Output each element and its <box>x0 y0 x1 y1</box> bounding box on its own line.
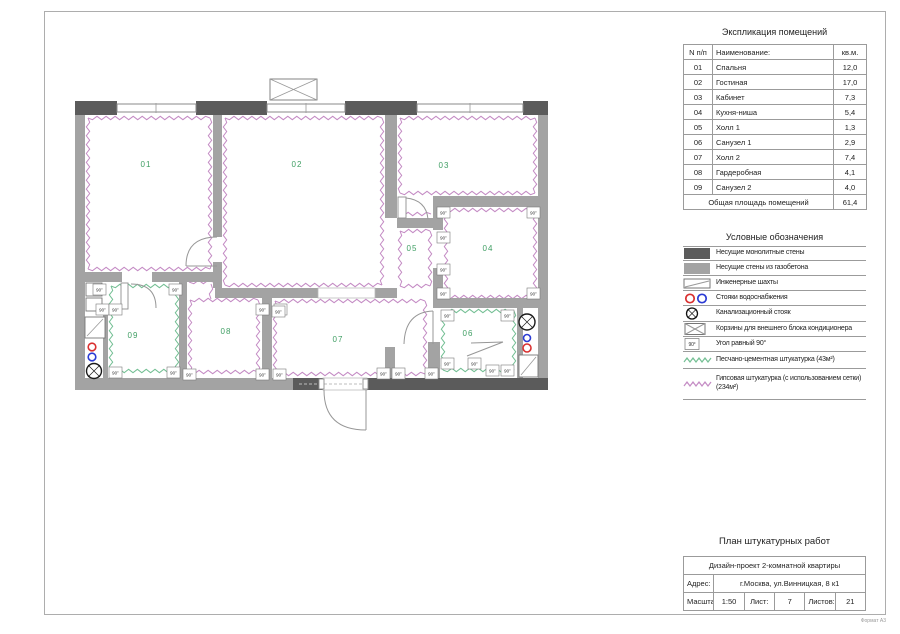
scale-value: 1:50 <box>714 593 744 611</box>
gypsum-plaster-line <box>400 191 535 194</box>
right-angle-icon: 90° <box>683 337 716 351</box>
legend-item: 90° Угол равный 90° <box>683 337 866 352</box>
portal-opening <box>318 288 375 298</box>
total-label: Общая площадь помещений <box>684 195 834 210</box>
room-label-05: 05 <box>407 244 418 253</box>
right-angle-marker: 90° <box>468 358 481 369</box>
right-angle-marker: 90° <box>392 368 405 379</box>
gypsum-plaster-line <box>428 231 431 286</box>
entry-jamb <box>319 379 324 389</box>
windows <box>117 103 523 113</box>
gypsum-plaster-line <box>400 284 430 287</box>
svg-text:90°: 90° <box>471 362 478 367</box>
room-area: 2,9 <box>834 135 867 150</box>
legend-item: Гипсовая штукатурка (с использованием се… <box>683 369 866 400</box>
wall-gas-concrete-icon <box>683 262 716 275</box>
table-row: 03 Кабинет 7,3 <box>684 90 867 105</box>
legend: Несущие монолитные стены Несущие стены и… <box>683 246 866 400</box>
room-name: Гардеробная <box>713 165 834 180</box>
legend-title: Условные обозначения <box>683 232 866 242</box>
gypsum-plaster-line <box>225 116 382 119</box>
legend-label: Несущие стены из газобетона <box>716 264 866 273</box>
legend-label: Корзины для внешнего блока кондиционера <box>716 325 866 334</box>
sheet-label: Лист: <box>744 593 774 611</box>
ac-basket-icon <box>683 322 716 336</box>
room-label-08: 08 <box>221 327 232 336</box>
room-name: Кухня-ниша <box>713 105 834 120</box>
gypsum-plaster-line <box>446 208 535 211</box>
table-row: 09 Санузел 2 4,0 <box>684 180 867 195</box>
legend-item: Инженерные шахты <box>683 276 866 291</box>
svg-text:90°: 90° <box>530 292 537 297</box>
legend-label: Угол равный 90° <box>716 340 866 349</box>
legend-label: Канализационный стояк <box>716 309 866 318</box>
right-angle-marker: 90° <box>109 304 122 315</box>
svg-text:90°: 90° <box>444 314 451 319</box>
room-label-04: 04 <box>483 244 494 253</box>
right-angle-marker: 90° <box>527 288 540 299</box>
wall-monolithic-icon <box>683 247 716 260</box>
legend-label: Песчано-цементная штукатурка (43м²) <box>716 356 866 365</box>
table-row: 08 Гардеробная 4,1 <box>684 165 867 180</box>
svg-text:90°: 90° <box>112 371 119 376</box>
room-area: 1,3 <box>834 120 867 135</box>
col-header-name: Наименование: <box>713 45 834 60</box>
col-header-area: кв.м. <box>834 45 867 60</box>
svg-text:90°: 90° <box>428 372 435 377</box>
right-angle-marker: 90° <box>183 369 196 380</box>
gypsum-plaster-line <box>86 118 89 269</box>
gypsum-plaster-line <box>400 229 430 232</box>
table-row: 06 Санузел 1 2,9 <box>684 135 867 150</box>
table-row: 02 Гостиная 17,0 <box>684 75 867 90</box>
room-label-06: 06 <box>463 329 474 338</box>
room-area: 17,0 <box>834 75 867 90</box>
room-num: 01 <box>684 60 713 75</box>
door-bath1-inner-leaf <box>467 342 503 356</box>
right-angle-marker: 90° <box>441 310 454 321</box>
right-angle-marker: 90° <box>273 369 286 380</box>
right-angle-marker: 90° <box>96 304 109 315</box>
gypsum-plaster-line <box>400 116 535 119</box>
svg-text:90°: 90° <box>440 268 447 273</box>
walls-monolithic <box>75 101 548 390</box>
legend-label: Несущие монолитные стены <box>716 249 866 258</box>
svg-text:90°: 90° <box>504 369 511 374</box>
room-name: Кабинет <box>713 90 834 105</box>
gypsum-plaster-icon <box>683 379 716 389</box>
gypsum-plaster-line <box>398 231 401 286</box>
right-angle-marker: 90° <box>501 310 514 321</box>
room-label-03: 03 <box>439 161 450 170</box>
water-riser-red-icon <box>88 343 96 351</box>
legend-label: Гипсовая штукатурка (с использованием се… <box>716 375 866 393</box>
svg-text:90°: 90° <box>530 211 537 216</box>
cement-plaster-icon <box>683 355 716 365</box>
right-angle-marker: 90° <box>437 207 450 218</box>
right-angle-marker: 90° <box>169 284 182 295</box>
legend-label: Инженерные шахты <box>716 279 866 288</box>
svg-text:90°: 90° <box>395 372 402 377</box>
room-num: 06 <box>684 135 713 150</box>
svg-text:90°: 90° <box>489 369 496 374</box>
project-row: Дизайн-проект 2-комнатной квартиры <box>684 557 866 575</box>
right-angle-marker: 90° <box>109 367 122 378</box>
door-cabinet-leaf <box>398 197 406 218</box>
legend-item: Несущие стены из газобетона <box>683 261 866 276</box>
col-header-num: N п/п <box>684 45 713 60</box>
room-num: 07 <box>684 150 713 165</box>
svg-text:90°: 90° <box>259 373 266 378</box>
project-name: Дизайн-проект 2-комнатной квартиры <box>684 557 866 575</box>
gypsum-plaster-line <box>533 118 536 193</box>
gypsum-plaster-line <box>444 210 447 297</box>
svg-text:90°: 90° <box>440 236 447 241</box>
room-label-09: 09 <box>128 331 139 340</box>
floor-plan: 90°90°90°90°90°90°90°90°90°90°90°90°90°9… <box>60 68 580 448</box>
room-name: Спальня <box>713 60 834 75</box>
svg-text:90°: 90° <box>99 308 106 313</box>
right-angle-marker: 90° <box>256 369 269 380</box>
room-num: 09 <box>684 180 713 195</box>
entry-jamb <box>363 379 368 389</box>
room-name: Гостиная <box>713 75 834 90</box>
legend-item: Песчано-цементная штукатурка (43м²) <box>683 352 866 369</box>
right-angle-marker: 90° <box>437 288 450 299</box>
gypsum-plaster-line <box>208 118 211 269</box>
scale-label: Масштаб: <box>684 593 714 611</box>
water-riser-blue-icon <box>88 353 96 361</box>
gypsum-plaster-line <box>275 299 425 302</box>
room-name: Санузел 1 <box>713 135 834 150</box>
room-area: 7,3 <box>834 90 867 105</box>
right-angle-marker: 90° <box>256 304 269 315</box>
svg-text:90°: 90° <box>275 310 282 315</box>
gypsum-plaster-line <box>190 298 258 301</box>
address-row: Адрес: г.Москва, ул.Винницкая, 8 к1 <box>684 575 866 593</box>
svg-text:90°: 90° <box>504 314 511 319</box>
water-riser-red-icon <box>523 344 531 352</box>
sheet-number: 7 <box>774 593 804 611</box>
door-bath2-arc <box>131 284 156 308</box>
room-area: 5,4 <box>834 105 867 120</box>
svg-text:90°: 90° <box>689 342 696 348</box>
water-riser-blue-icon <box>524 335 531 342</box>
sheets-label: Листов: <box>805 593 835 611</box>
scale-row: Масштаб: 1:50 Лист: 7 Листов: 21 <box>684 593 866 611</box>
room-area: 12,0 <box>834 60 867 75</box>
room-num: 08 <box>684 165 713 180</box>
right-angle-marker: 90° <box>437 232 450 243</box>
address-label: Адрес: <box>684 575 714 593</box>
svg-text:90°: 90° <box>276 373 283 378</box>
right-angle-marker: 90° <box>486 365 499 376</box>
gypsum-plaster-line <box>190 370 258 373</box>
legend-label: Стояки водоснабжения <box>716 294 866 303</box>
format-label: Формат А3 <box>826 618 886 624</box>
right-angle-marker: 90° <box>272 306 285 317</box>
drawing-title: План штукатурных работ <box>683 536 866 547</box>
gypsum-plaster-line <box>209 284 212 299</box>
right-angle-marker: 90° <box>437 264 450 275</box>
room-name: Холл 2 <box>713 150 834 165</box>
explication-total-row: Общая площадь помещений 61,4 <box>684 195 867 210</box>
svg-text:90°: 90° <box>440 211 447 216</box>
door-bedroom-arc <box>186 237 217 266</box>
entry-door-arc <box>324 390 366 430</box>
sheets-total: 21 <box>835 593 865 611</box>
svg-text:90°: 90° <box>186 373 193 378</box>
legend-item: Несущие монолитные стены <box>683 246 866 261</box>
door-cabinet-arc <box>406 198 428 219</box>
room-area: 7,4 <box>834 150 867 165</box>
room-name: Холл 1 <box>713 120 834 135</box>
title-block-table: Дизайн-проект 2-комнатной квартиры Адрес… <box>683 556 866 611</box>
right-angle-marker: 90° <box>93 284 106 295</box>
room-area: 4,1 <box>834 165 867 180</box>
address-value: г.Москва, ул.Винницкая, 8 к1 <box>714 575 866 593</box>
svg-text:90°: 90° <box>170 371 177 376</box>
explication-table: N п/п Наименование: кв.м. 01 Спальня 12,… <box>683 44 867 210</box>
engineering-shaft-icon <box>683 277 716 290</box>
room-num: 05 <box>684 120 713 135</box>
water-risers-icon <box>683 292 716 305</box>
gypsum-plaster-line <box>88 267 210 270</box>
right-angle-marker: 90° <box>441 358 454 369</box>
gypsum-plaster-line <box>533 210 536 297</box>
svg-text:90°: 90° <box>112 308 119 313</box>
cement-plaster-line <box>175 286 178 371</box>
total-area: 61,4 <box>834 195 867 210</box>
door-bath1-arc <box>404 311 433 344</box>
gypsum-plaster-line <box>398 118 401 193</box>
svg-text:90°: 90° <box>96 288 103 293</box>
gypsum-plaster-line <box>380 118 383 285</box>
room-name: Санузел 2 <box>713 180 834 195</box>
svg-text:90°: 90° <box>172 288 179 293</box>
room-num: 03 <box>684 90 713 105</box>
table-row: 07 Холл 2 7,4 <box>684 150 867 165</box>
svg-text:90°: 90° <box>380 372 387 377</box>
right-angle-marker: 90° <box>501 365 514 376</box>
svg-text:90°: 90° <box>444 362 451 367</box>
gypsum-plaster-line <box>88 116 210 119</box>
gypsum-plaster-line <box>223 118 226 285</box>
gypsum-plaster-line <box>225 283 382 286</box>
gypsum-plaster-line <box>188 300 191 372</box>
room-num: 04 <box>684 105 713 120</box>
explication-header-row: N п/п Наименование: кв.м. <box>684 45 867 60</box>
room-num: 02 <box>684 75 713 90</box>
room-area: 4,0 <box>834 180 867 195</box>
explication-title: Экспликация помещений <box>683 27 866 37</box>
room-label-07: 07 <box>333 335 344 344</box>
room-label-01: 01 <box>141 160 152 169</box>
legend-item: Стояки водоснабжения <box>683 291 866 306</box>
legend-item: Корзины для внешнего блока кондиционера <box>683 322 866 337</box>
walls-gas-concrete <box>75 115 548 390</box>
right-angle-marker: 90° <box>527 207 540 218</box>
right-angle-marker: 90° <box>377 368 390 379</box>
sewer-riser-icon <box>683 306 716 321</box>
table-row: 04 Кухня-ниша 5,4 <box>684 105 867 120</box>
svg-text:90°: 90° <box>259 308 266 313</box>
room-label-02: 02 <box>292 160 303 169</box>
table-row: 05 Холл 1 1,3 <box>684 120 867 135</box>
svg-text:90°: 90° <box>440 292 447 297</box>
right-angle-marker: 90° <box>425 368 438 379</box>
cement-plaster-line <box>109 286 112 371</box>
right-angle-marker: 90° <box>167 367 180 378</box>
table-row: 01 Спальня 12,0 <box>684 60 867 75</box>
legend-item: Канализационный стояк <box>683 306 866 322</box>
